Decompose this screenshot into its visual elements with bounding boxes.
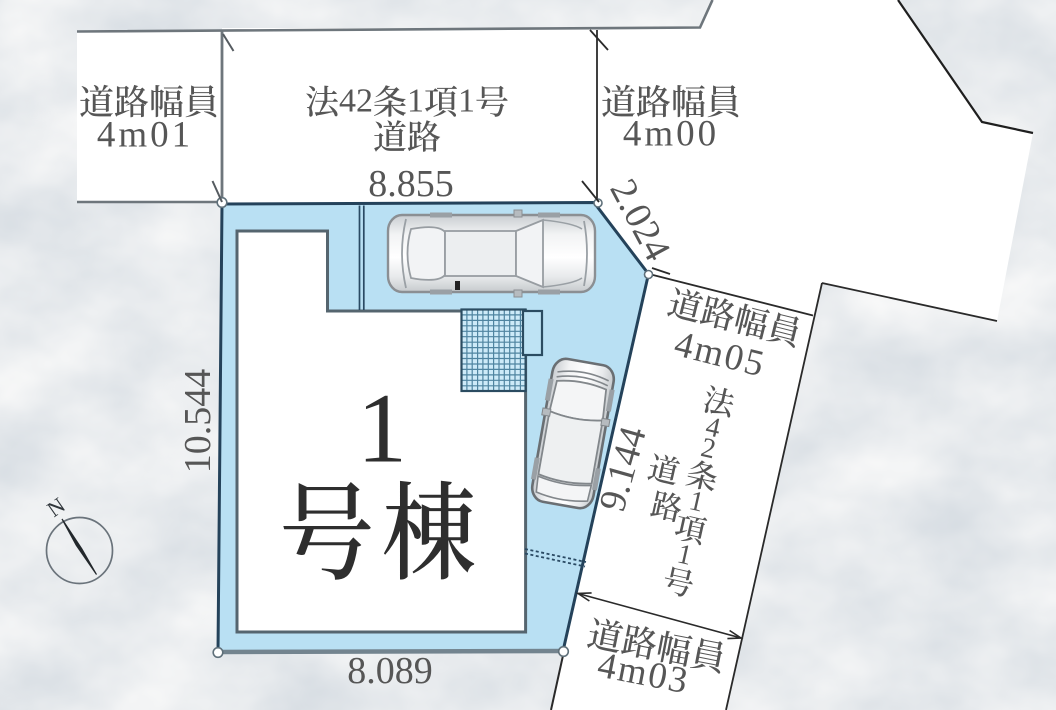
svg-text:10.544: 10.544 [177,369,219,474]
svg-text:1: 1 [407,83,424,120]
svg-text:8.089: 8.089 [347,650,433,692]
svg-text:4m00: 4m00 [623,114,719,155]
svg-text:2: 2 [356,83,373,120]
svg-text:4m01: 4m01 [97,115,193,156]
svg-text:1: 1 [357,373,407,484]
svg-text:8.855: 8.855 [368,163,454,205]
svg-text:1: 1 [458,83,475,120]
svg-text:4: 4 [339,83,356,120]
